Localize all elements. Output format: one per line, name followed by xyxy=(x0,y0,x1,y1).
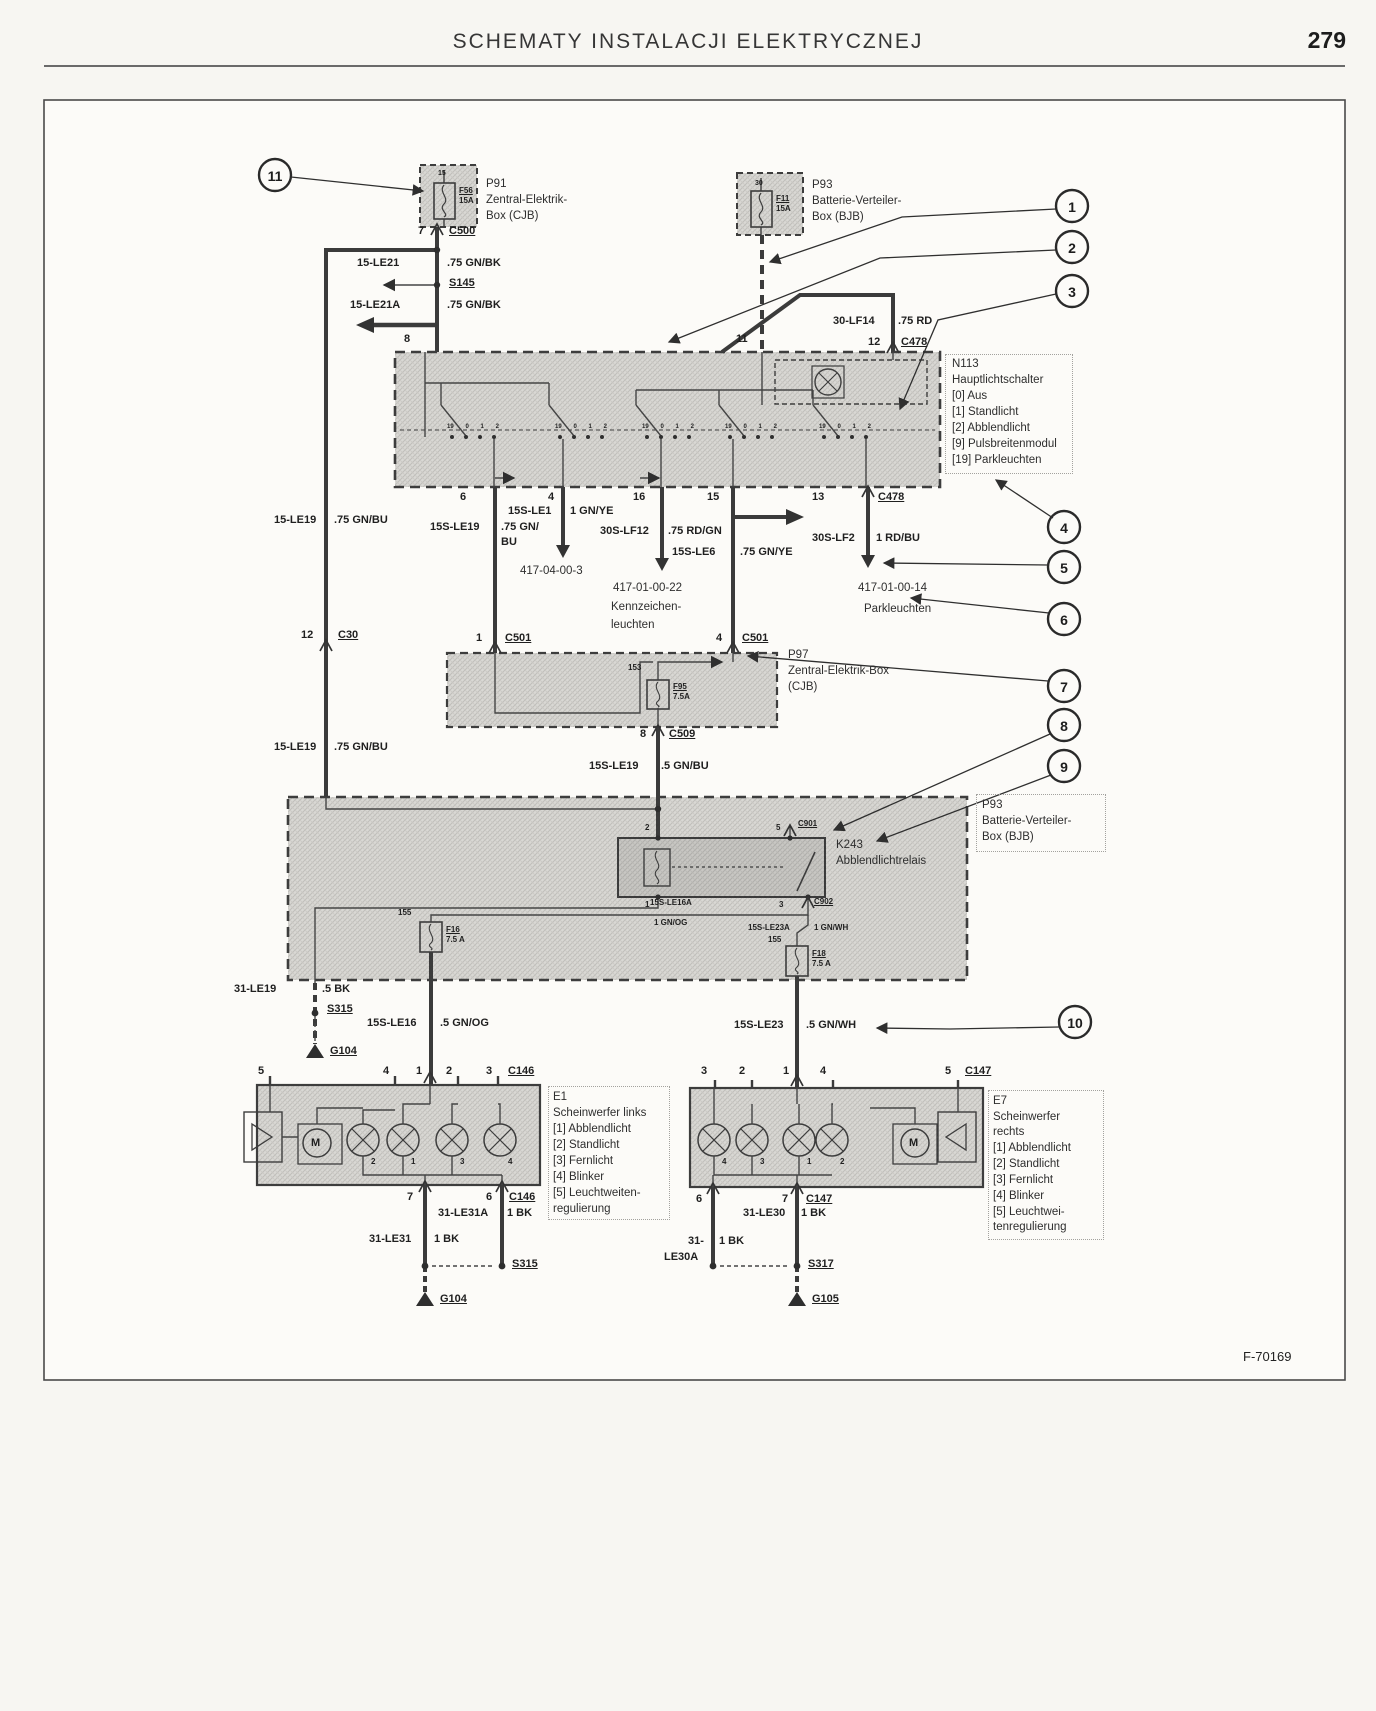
e7-pin-6: 6 xyxy=(696,1194,702,1205)
ref-417-01-00-22: 417-01-00-22 xyxy=(613,583,682,595)
contact-row: 19012 xyxy=(555,424,607,430)
n113-opt0: [0] Aus xyxy=(952,391,987,403)
wire-31le31-spec: 1 BK xyxy=(434,1234,459,1245)
e1-desc: Scheinwerfer links xyxy=(553,1108,646,1120)
wire-15sle1-name: 15S-LE1 xyxy=(508,506,551,517)
p91-pin-out: 7 xyxy=(418,226,424,237)
p93b-bus-r: 155 xyxy=(768,936,781,944)
e7-pin-1: 1 xyxy=(783,1066,789,1077)
e7-opt4: [4] Blinker xyxy=(993,1191,1044,1203)
p97-conn-l: C501 xyxy=(505,633,531,644)
e7-pin-7: 7 xyxy=(782,1194,788,1205)
p93b-desc2: Box (BJB) xyxy=(982,832,1034,844)
e7-opt5b: tenregulierung xyxy=(993,1222,1067,1234)
k243-name: K243 xyxy=(836,840,863,852)
e7-name: E7 xyxy=(993,1096,1007,1108)
callout-5: 5 xyxy=(1048,560,1080,576)
callout-7: 7 xyxy=(1048,679,1080,695)
e1-lamp-num: 3 xyxy=(460,1158,464,1166)
callout-10: 10 xyxy=(1059,1015,1091,1031)
p93t-name: P93 xyxy=(812,180,832,192)
k243-pin2: 2 xyxy=(645,824,649,832)
splice-s315a: S315 xyxy=(327,1004,353,1015)
e1-opt3: [3] Fernlicht xyxy=(553,1156,613,1168)
conn-c30-pin: 12 xyxy=(301,630,313,641)
wire-15le21-name: 15-LE21 xyxy=(357,258,399,269)
e1-opt5a: [5] Leuchtweiten- xyxy=(553,1188,641,1200)
p93b-fuse-r: F18 xyxy=(812,950,826,958)
wire-15sle6-name: 15S-LE6 xyxy=(672,547,715,558)
splice-s315b: S315 xyxy=(512,1259,538,1270)
wire-15sle16a-name: 15S-LE16A xyxy=(650,899,692,907)
wire-15sle16-name: 15S-LE16 xyxy=(367,1018,417,1029)
e7-opt2: [2] Standlicht xyxy=(993,1159,1059,1171)
ref-parkleuchten: Parkleuchten xyxy=(864,604,931,616)
splice-s145: S145 xyxy=(449,278,475,289)
ref-417-01-00-14: 417-01-00-14 xyxy=(858,583,927,595)
e7-pin-2: 2 xyxy=(739,1066,745,1077)
wire-15sle23a-name: 15S-LE23A xyxy=(748,924,790,932)
e7-opt3: [3] Fernlicht xyxy=(993,1175,1053,1187)
wire-31le30a-name2: LE30A xyxy=(664,1252,698,1263)
manual-page: SCHEMATY INSTALACJI ELEKTRYCZNEJ 279 F-7… xyxy=(0,0,1376,1711)
n113-opt19: [19] Parkleuchten xyxy=(952,455,1042,467)
n113-title: Hauptlichtschalter xyxy=(952,375,1043,387)
e7-desc2: rechts xyxy=(993,1127,1024,1139)
p91-fuse-amps: 15A xyxy=(459,197,474,205)
wire-15sle23a-spec: 1 GN/WH xyxy=(814,924,848,932)
p97-pin-out: 8 xyxy=(640,729,646,740)
e7-conn-top: C147 xyxy=(965,1066,991,1077)
wire-31le30-name: 31-LE30 xyxy=(743,1208,785,1219)
p93t-pin-top: 30 xyxy=(755,180,763,187)
k243-pin1: 1 xyxy=(645,901,649,909)
wire-31le19-name: 31-LE19 xyxy=(234,984,276,995)
e7-opt1: [1] Abblendlicht xyxy=(993,1143,1071,1155)
wire-15sle19b-name: 15S-LE19 xyxy=(589,761,639,772)
ground-g104a: G104 xyxy=(330,1046,357,1057)
switch-pin12: 12 xyxy=(868,337,880,348)
e7-pin-4: 4 xyxy=(820,1066,826,1077)
e7-lamp-num: 3 xyxy=(760,1158,764,1166)
n113-opt2: [2] Abblendlicht xyxy=(952,423,1030,435)
ground-g104b: G104 xyxy=(440,1294,467,1305)
wiring-diagram-art xyxy=(0,0,1376,1711)
p93t-desc2: Box (BJB) xyxy=(812,212,864,224)
k243-pin3: 3 xyxy=(779,901,783,909)
callout-3: 3 xyxy=(1056,284,1088,300)
e1-pin-4: 4 xyxy=(383,1066,389,1077)
wire-15sle23-spec: .5 GN/WH xyxy=(806,1020,856,1031)
wire-15sle19b-spec: .5 GN/BU xyxy=(661,761,709,772)
e7-lamp-num: 1 xyxy=(807,1158,811,1166)
e1-name: E1 xyxy=(553,1092,567,1104)
switch-pin16: 16 xyxy=(633,492,645,503)
callout-9: 9 xyxy=(1048,759,1080,775)
e1-conn-bottom: C146 xyxy=(509,1192,535,1203)
e1-conn-top: C146 xyxy=(508,1066,534,1077)
wire-30lf14-name: 30-LF14 xyxy=(833,316,875,327)
wire-31le31a-spec: 1 BK xyxy=(507,1208,532,1219)
p97-desc1: Zentral-Elektrik-Box xyxy=(788,666,889,678)
wire-30slf2-name: 30S-LF2 xyxy=(812,533,855,544)
e7-lamp-num: 2 xyxy=(840,1158,844,1166)
e1-pin-2: 2 xyxy=(446,1066,452,1077)
switch-pin15: 15 xyxy=(707,492,719,503)
p91-desc2: Box (CJB) xyxy=(486,211,538,223)
e1-motor: M xyxy=(311,1138,320,1149)
p97-fuse: F95 xyxy=(673,683,687,691)
switch-pin8: 8 xyxy=(404,334,410,345)
callout-8: 8 xyxy=(1048,718,1080,734)
wire-15sle19-name: 15S-LE19 xyxy=(430,522,480,533)
p91-conn-out: C500 xyxy=(449,226,475,237)
p97-conn-out: C509 xyxy=(669,729,695,740)
wire-15sle16-spec: .5 GN/OG xyxy=(440,1018,489,1029)
e7-opt5a: [5] Leuchtwei- xyxy=(993,1207,1065,1219)
switch-pin6: 6 xyxy=(460,492,466,503)
wire-31le30-spec: 1 BK xyxy=(801,1208,826,1219)
p97-fuse-amps: 7.5A xyxy=(673,693,690,701)
k243-pin5: 5 xyxy=(776,824,780,832)
conn-c30: C30 xyxy=(338,630,358,641)
wire-31le31-name: 31-LE31 xyxy=(369,1234,411,1245)
wire-15le19a-spec: .75 GN/BU xyxy=(334,515,388,526)
page-number: 279 xyxy=(1260,27,1346,54)
figure-code: F-70169 xyxy=(1243,1349,1291,1364)
p93t-desc1: Batterie-Verteiler- xyxy=(812,196,901,208)
ref-leuchten: leuchten xyxy=(611,620,654,632)
p91-name: P91 xyxy=(486,179,506,191)
callout-4: 4 xyxy=(1048,520,1080,536)
p97-name: P97 xyxy=(788,650,808,662)
wire-31le31a-name: 31-LE31A xyxy=(438,1208,488,1219)
e1-lamp-num: 1 xyxy=(411,1158,415,1166)
p93b-fuse-l-amps: 7.5 A xyxy=(446,936,465,944)
ref-kennzeichen: Kennzeichen- xyxy=(611,602,681,614)
wire-15le21-spec: .75 GN/BK xyxy=(447,258,501,269)
switch-conn13: C478 xyxy=(878,492,904,503)
wire-31le30a-name1: 31- xyxy=(688,1236,704,1247)
e7-lamp-num: 4 xyxy=(722,1158,726,1166)
n113-name: N113 xyxy=(952,359,979,371)
switch-pin4: 4 xyxy=(548,492,554,503)
wire-15sle19-spec2: BU xyxy=(501,537,517,548)
p93t-fuse: F11 xyxy=(776,195,789,203)
splice-s317: S317 xyxy=(808,1259,834,1270)
callout-2: 2 xyxy=(1056,240,1088,256)
wire-15sle1-spec: 1 GN/YE xyxy=(570,506,613,517)
p97-desc2: (CJB) xyxy=(788,682,817,694)
e7-pin-5: 5 xyxy=(945,1066,951,1077)
ref-417-04-00-3: 417-04-00-3 xyxy=(520,566,583,578)
p93b-name: P93 xyxy=(982,800,1002,812)
ground-g105: G105 xyxy=(812,1294,839,1305)
switch-pin13: 13 xyxy=(812,492,824,503)
contact-row: 19012 xyxy=(642,424,694,430)
k243-conn-bottom: C902 xyxy=(814,898,833,906)
p93b-bus-l: 155 xyxy=(398,909,411,917)
e1-pin-7: 7 xyxy=(407,1192,413,1203)
wire-30slf12-name: 30S-LF12 xyxy=(600,526,649,537)
wire-30lf14-spec: .75 RD xyxy=(898,316,932,327)
p97-bus: 153 xyxy=(628,664,641,672)
p93b-desc1: Batterie-Verteiler- xyxy=(982,816,1071,828)
p93b-fuse-l: F16 xyxy=(446,926,460,934)
e7-desc1: Scheinwerfer xyxy=(993,1112,1060,1124)
contact-row: 19012 xyxy=(725,424,777,430)
wire-31le30a-spec: 1 BK xyxy=(719,1236,744,1247)
p97-pin1: 1 xyxy=(476,633,482,644)
switch-pin11: 11 xyxy=(736,334,748,345)
n113-opt1: [1] Standlicht xyxy=(952,407,1018,419)
p93t-fuse-amps: 15A xyxy=(776,205,791,213)
wire-15sle23-name: 15S-LE23 xyxy=(734,1020,784,1031)
k243-conn-top: C901 xyxy=(798,820,817,828)
n113-opt9: [9] Pulsbreitenmodul xyxy=(952,439,1057,451)
e1-opt1: [1] Abblendlicht xyxy=(553,1124,631,1136)
k243-desc: Abblendlichtrelais xyxy=(836,856,926,868)
e1-pin-1: 1 xyxy=(416,1066,422,1077)
contact-row: 19012 xyxy=(819,424,871,430)
e1-pin-5: 5 xyxy=(258,1066,264,1077)
wire-15le19b-name: 15-LE19 xyxy=(274,742,316,753)
e1-opt2: [2] Standlicht xyxy=(553,1140,619,1152)
e7-pin-3: 3 xyxy=(701,1066,707,1077)
p91-desc1: Zentral-Elektrik- xyxy=(486,195,567,207)
p93b-fuse-r-amps: 7.5 A xyxy=(812,960,831,968)
callout-11: 11 xyxy=(259,168,291,184)
callout-6: 6 xyxy=(1048,612,1080,628)
e1-lamp-num: 4 xyxy=(508,1158,512,1166)
e7-conn-bottom: C147 xyxy=(806,1194,832,1205)
callout-1: 1 xyxy=(1056,199,1088,215)
p97-pin4: 4 xyxy=(716,633,722,644)
p91-fuse: F56 xyxy=(459,187,473,195)
p97-conn-r: C501 xyxy=(742,633,768,644)
wire-15sle6-spec: .75 GN/YE xyxy=(740,547,793,558)
e1-opt5b: regulierung xyxy=(553,1204,611,1216)
e1-lamp-num: 2 xyxy=(371,1158,375,1166)
switch-conn12: C478 xyxy=(901,337,927,348)
wire-30slf2-spec: 1 RD/BU xyxy=(876,533,920,544)
e1-opt4: [4] Blinker xyxy=(553,1172,604,1184)
wire-30slf12-spec: .75 RD/GN xyxy=(668,526,722,537)
wire-15sle19-spec1: .75 GN/ xyxy=(501,522,539,533)
p91-pin-top: 15 xyxy=(438,170,446,177)
wire-15le21a-spec: .75 GN/BK xyxy=(447,300,501,311)
wire-15le19a-name: 15-LE19 xyxy=(274,515,316,526)
wire-15le19b-spec: .75 GN/BU xyxy=(334,742,388,753)
e1-pin-3: 3 xyxy=(486,1066,492,1077)
contact-row: 19012 xyxy=(447,424,499,430)
e7-motor: M xyxy=(909,1138,918,1149)
e1-pin-6: 6 xyxy=(486,1192,492,1203)
wire-15le21a-name: 15-LE21A xyxy=(350,300,400,311)
page-title: SCHEMATY INSTALACJI ELEKTRYCZNEJ xyxy=(453,30,924,54)
wire-31le19-spec: .5 BK xyxy=(322,984,350,995)
wire-15sle16a-spec: 1 GN/OG xyxy=(654,919,687,927)
